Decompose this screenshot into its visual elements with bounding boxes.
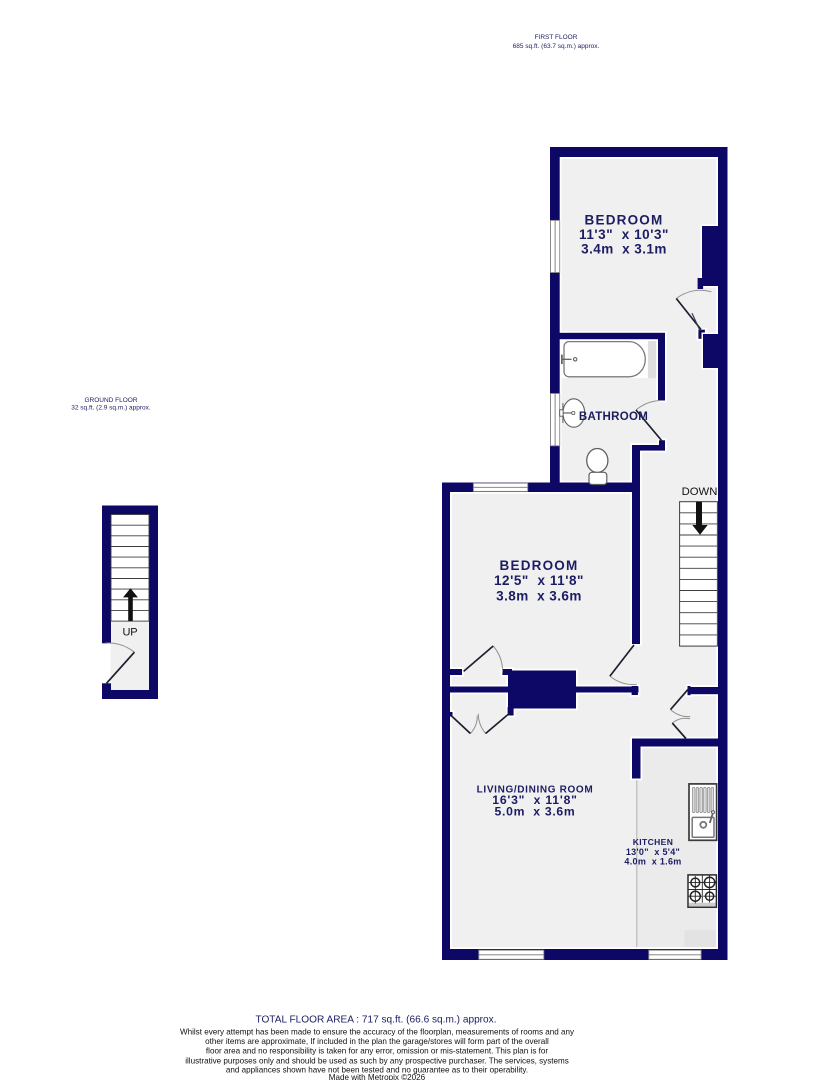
svg-text:other items are approximate, I: other items are approximate, If included… xyxy=(205,1037,549,1046)
svg-text:BEDROOM: BEDROOM xyxy=(500,558,579,573)
svg-text:BATHROOM: BATHROOM xyxy=(579,411,648,423)
svg-text:FIRST FLOOR: FIRST FLOOR xyxy=(535,34,578,41)
svg-text:DOWN: DOWN xyxy=(682,486,718,498)
svg-text:GROUND FLOOR: GROUND FLOOR xyxy=(84,397,137,404)
svg-text:floor area and no responsibili: floor area and no responsibility is take… xyxy=(206,1047,548,1056)
svg-text:UP: UP xyxy=(123,627,138,639)
svg-text:11'3" x 10'3": 11'3" x 10'3" xyxy=(579,227,669,242)
svg-text:TOTAL FLOOR AREA : 717 sq.ft.: TOTAL FLOOR AREA : 717 sq.ft. (66.6 sq.m… xyxy=(255,1014,496,1025)
svg-text:BEDROOM: BEDROOM xyxy=(585,212,664,227)
svg-text:3.8m x 3.6m: 3.8m x 3.6m xyxy=(496,589,582,604)
svg-text:4.0m x 1.6m: 4.0m x 1.6m xyxy=(624,857,681,867)
svg-text:Made with Metropix ©2026: Made with Metropix ©2026 xyxy=(329,1073,426,1080)
svg-text:685 sq.ft. (63.7 sq.m.) approx: 685 sq.ft. (63.7 sq.m.) approx. xyxy=(513,43,600,50)
svg-text:5.0m x 3.6m: 5.0m x 3.6m xyxy=(495,805,576,819)
svg-text:3.4m x 3.1m: 3.4m x 3.1m xyxy=(581,241,667,256)
svg-text:KITCHEN: KITCHEN xyxy=(633,837,674,847)
svg-text:Whilst every attempt has been: Whilst every attempt has been made to en… xyxy=(180,1028,575,1037)
svg-text:illustrative purposes only and: illustrative purposes only and should be… xyxy=(185,1056,569,1065)
svg-text:13'0" x 5'4": 13'0" x 5'4" xyxy=(626,847,680,857)
svg-text:12'5" x 11'8": 12'5" x 11'8" xyxy=(494,573,584,588)
svg-text:32 sq.ft. (2.9 sq.m.) approx.: 32 sq.ft. (2.9 sq.m.) approx. xyxy=(71,404,151,411)
